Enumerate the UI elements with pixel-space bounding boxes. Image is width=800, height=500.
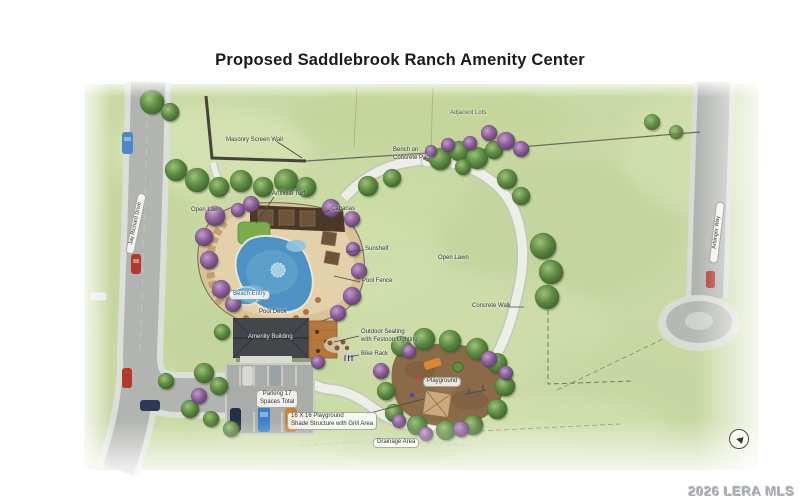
label-bench-on-concrete-pad: Bench on Concrete Pad xyxy=(393,147,430,163)
label-open-lawn-right: Open Lawn xyxy=(438,255,469,263)
label-pool-fence: Pool Fence xyxy=(362,278,392,286)
mls-watermark: 2026 LERA MLS xyxy=(689,484,795,499)
label-beach-entry: Beach Entry xyxy=(229,290,270,300)
label-cabanas: Cabanas xyxy=(331,206,355,214)
label-outdoor-seating: Outdoor Seating with Festoon Lighting xyxy=(361,329,418,345)
label-parking: Parking 17 Spaces Total xyxy=(256,390,298,408)
label-pool-deck: Pool Deck xyxy=(259,309,286,317)
page-title: Proposed Saddlebrook Ranch Amenity Cente… xyxy=(0,51,800,70)
listing-photo-site-plan: Proposed Saddlebrook Ranch Amenity Cente… xyxy=(0,0,800,500)
label-bike-rack: Bike Rack xyxy=(361,351,388,359)
label-drainage-area: Drainage Area xyxy=(373,438,419,448)
north-arrow-icon: ◀ xyxy=(729,429,749,449)
label-shade-structure: 16 X 16 Playground Shade Structure with … xyxy=(287,412,377,430)
label-amenity-building: Amenity Building xyxy=(248,334,293,342)
label-road-right: Arbinger Way xyxy=(709,201,726,264)
label-road-left: Jay Richard Drive xyxy=(125,192,147,255)
label-concrete-walk: Concrete Walk xyxy=(472,303,511,311)
label-masonry-screen-wall: Masonry Screen Wall xyxy=(226,137,283,145)
plan-labels: Adjacent Lots Masonry Screen Wall Bench … xyxy=(0,0,800,500)
label-sunshelf: Sunshelf xyxy=(365,246,388,254)
label-artificial-turf: Artificial Turf xyxy=(272,191,305,199)
label-adjacent-lots: Adjacent Lots xyxy=(450,110,486,118)
label-open-lawn-left: Open Lawn xyxy=(191,207,222,215)
label-playground: Playground xyxy=(423,377,461,387)
